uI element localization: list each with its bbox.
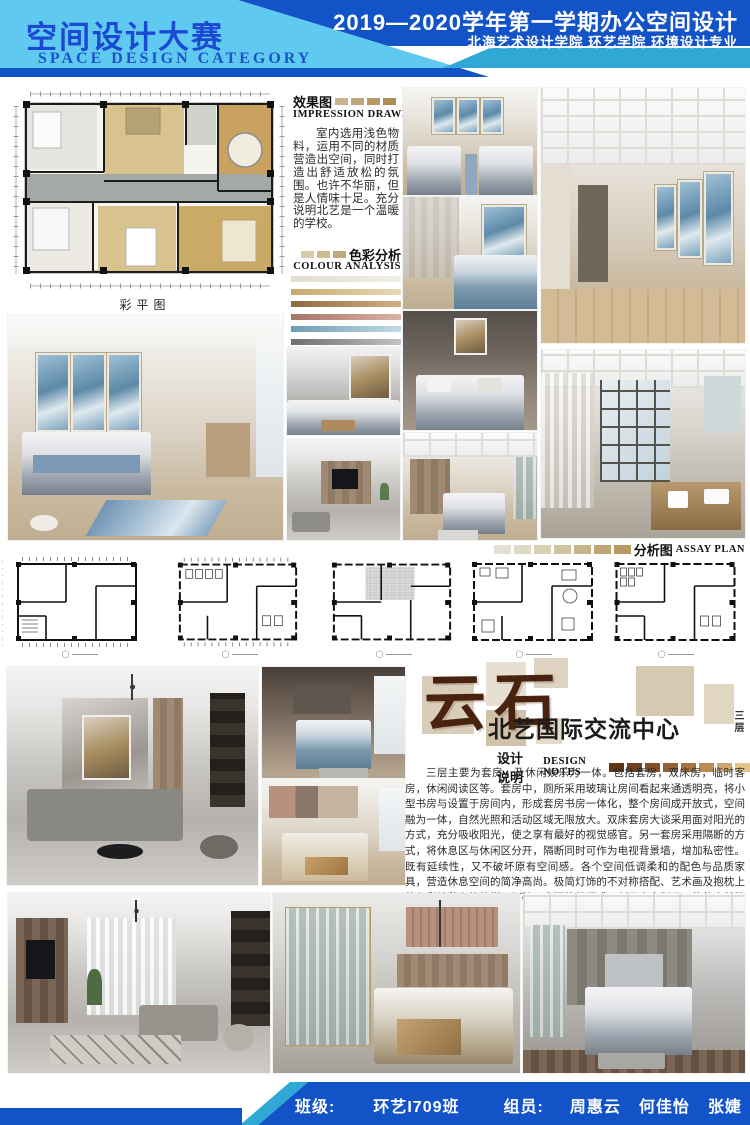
artwork [454,318,487,355]
colour-analysis-bars [291,276,401,351]
header-bottom-band [0,68,489,77]
bench [438,530,478,540]
runner-rug [465,154,477,195]
slat-art-panel [406,907,497,947]
wood-floor [541,289,745,343]
ceiling [8,315,283,351]
class-value: 环艺I709班 [373,1093,459,1117]
curtain [541,373,594,508]
pouf [200,835,238,859]
coffee-table [97,844,142,859]
artwork [36,353,70,431]
wall [541,165,570,293]
bed-runner [33,455,140,473]
footer-left-strip [0,1108,242,1125]
artwork [82,715,131,780]
artwork [349,354,391,400]
photo-bathroom-window [541,350,745,538]
wardrobe [530,925,566,1037]
basin [668,491,688,508]
wall-panel [403,197,459,278]
assay-label-en: ASSAY PLAN [676,544,745,555]
plan-caption: ◯ [354,650,434,658]
plan-rooms [27,105,271,271]
bw-plan-4 [462,556,604,648]
chandelier [118,900,155,922]
member-name: 张婕 [708,1093,742,1117]
photo-corridor-suite [541,88,745,343]
colour-analysis-swatches [301,251,346,258]
photo-bedroom-gold [262,780,405,885]
photo-bedroom-mirror [262,667,405,778]
towels [704,489,728,504]
header-cyan-stripe [443,48,750,68]
tv-screen [332,469,358,489]
artwork [704,172,732,265]
color-floor-plan [8,88,290,294]
desk [206,423,250,477]
pillow [427,378,451,392]
photo-tv-living-room [8,893,270,1073]
headboard [397,954,508,986]
wardrobe [513,457,537,519]
photo-tv-lounge [287,439,400,540]
plan-caption: ◯ [200,650,280,658]
artwork [432,98,455,134]
bench [598,1053,665,1069]
wall-panels [269,786,358,818]
doorway [578,185,609,282]
bw-plan-3 [326,556,458,648]
member-name: 何佳怡 [639,1093,690,1117]
bw-plan-2 [172,556,304,648]
display-shelf [210,693,245,806]
bed [296,720,370,769]
photo-living-suite [7,667,258,885]
window [256,338,284,478]
member-name: 周惠云 [570,1093,621,1117]
plant [87,969,103,1005]
impression-text: 室内选用浅色物料，运用不同的材质营造出空间，同时打造出舒适放松的氛围。也许不华丽… [293,128,399,231]
plant [380,483,389,499]
plan-caption: ◯ [40,650,120,658]
ceiling [541,88,745,165]
school-name: 北海艺术设计学院 环艺学院 环境设计专业 [467,31,738,51]
photo-bedroom-glass-bath [273,893,520,1073]
photo-bedroom-art-warm [287,347,400,435]
throw-blanket [321,420,355,431]
gold-throw [305,857,348,875]
artwork [481,98,504,134]
headboard [293,685,350,714]
pendant-light [439,900,441,947]
ceiling [523,893,745,929]
artwork [482,205,526,258]
logo-bg-square [636,666,694,716]
bw-plan-5 [606,556,745,648]
impression-swatches [335,98,396,105]
area-rug [86,500,228,536]
brand-name: 北艺国际交流中心 [488,710,680,744]
bed [407,146,461,195]
dimension-ticks [2,560,3,646]
artwork [457,98,480,134]
brand-block: 云石 北艺国际交流中心 三层 [408,658,745,748]
gold-throw [397,1019,461,1055]
display-shelf [231,911,270,1026]
floor-cushion [30,515,58,531]
sofa [292,512,330,532]
bench [319,768,368,778]
pillow [478,378,502,392]
window [379,788,405,851]
rug [50,1035,181,1064]
window-grid [600,380,669,482]
window [374,676,405,754]
bed [585,987,692,1055]
assay-swatches [494,545,631,554]
artwork [678,180,702,258]
footer-credits: 班级: 环艺I709班 组员: 周惠云 何佳怡 张婕 [295,1092,742,1118]
tv-screen [26,940,55,980]
colour-analysis-label-en: COLOUR ANALYSIS [291,261,401,272]
poster-root: 空间设计大赛 SPACE DESIGN CATEGORY 2019—2020学年… [0,0,750,1125]
artwork [71,353,105,431]
photo-bedroom-grey [523,893,745,1073]
color-plan-caption: 彩平图 [80,296,210,313]
mirror [704,376,741,432]
members-label: 组员: [504,1093,544,1117]
artwork [107,353,141,431]
class-label: 班级: [295,1093,335,1117]
chandelier [117,674,147,700]
bed [479,146,533,195]
bw-plan-1 [10,556,144,648]
photo-twin-bedroom [403,88,537,195]
page-subtitle: SPACE DESIGN CATEGORY [38,50,312,68]
photo-bedroom-wide [403,433,537,540]
bed [443,493,505,534]
photo-bedroom-dark [403,311,537,430]
artwork [655,185,675,250]
brand-floor-label: 三层 [730,710,745,734]
sofa [27,789,183,841]
glass-shower [285,907,371,1046]
armchair [223,1024,254,1051]
bed [454,255,537,309]
ceiling [403,433,537,457]
photo-master-bedroom [8,315,283,540]
plan-caption: ◯ [636,650,716,658]
photo-bedroom-blue-art [403,197,537,309]
